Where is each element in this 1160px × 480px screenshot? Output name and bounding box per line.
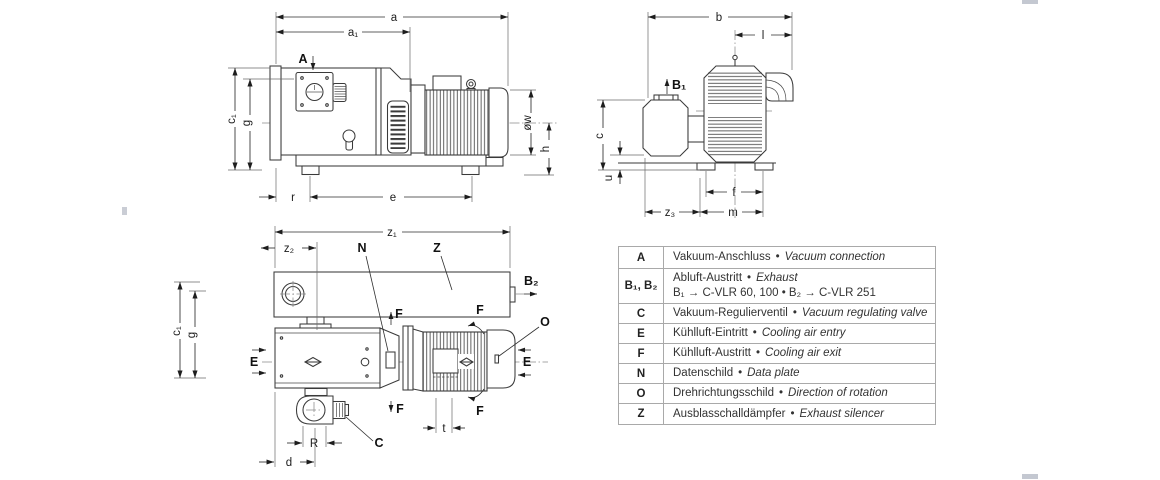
pump-dimension-drawing: a a₁ c₁ g øw h r e A (0, 0, 1160, 480)
legend-en: Vacuum regulating valve (802, 307, 928, 319)
sight-glass (343, 130, 355, 142)
terminal-box-top (433, 349, 458, 373)
dim-label-t: t (442, 423, 446, 435)
dim-label-e: e (390, 192, 396, 204)
silencer-connector (688, 116, 704, 142)
legend-de: Abluft-Austritt (673, 272, 742, 284)
dim-label-f: f (732, 187, 736, 199)
legend-en: Vacuum connection (785, 251, 886, 263)
dim-label-c1-top: c₁ (171, 326, 183, 336)
legend-desc: Kühlluft-Austritt•Cooling air exit (664, 346, 935, 361)
legend-en: Cooling air entry (762, 327, 846, 339)
legend-desc: Vakuum-Regulierventil•Vacuum regulating … (664, 306, 935, 321)
dim-label-z2: z₂ (284, 243, 294, 255)
top-view: z₁ z₂ c₁ g R d t N Z B₂ (171, 226, 550, 469)
legend-en: Direction of rotation (788, 387, 888, 399)
dim-label-g-top: g (186, 332, 198, 338)
legend-key: O (619, 384, 664, 403)
dim-label-a1: a₁ (348, 27, 358, 39)
legend-key: F (619, 344, 664, 363)
point-label-N: N (357, 241, 366, 255)
point-label-F3: F (476, 303, 484, 317)
legend-de: Vakuum-Regulierventil (673, 307, 788, 319)
legend-desc: Kühlluft-Eintritt•Cooling air entry (664, 326, 935, 341)
bullet-separator: • (738, 367, 742, 379)
point-label-F1: F (395, 307, 403, 321)
bullet-separator: • (793, 307, 797, 319)
dim-label-z1: z₁ (387, 227, 397, 239)
legend-row-F: F Kühlluft-Austritt•Cooling air exit (619, 343, 935, 363)
legend-desc: Datenschild•Data plate (664, 366, 935, 381)
point-label-C: C (374, 436, 383, 450)
motor-fins (425, 90, 489, 155)
point-label-B1: B₁ (672, 78, 686, 92)
dim-label-ow: øw (522, 115, 534, 131)
exhaust-elbow (766, 73, 793, 101)
bullet-separator: • (779, 387, 783, 399)
exhaust-port-b1 (654, 95, 678, 100)
legend-de: Vakuum-Anschluss (673, 251, 771, 263)
point-label-F4: F (476, 404, 484, 418)
legend-row-B: B₁, B₂ Abluft-Austritt•Exhaust B₁ → C-VL… (619, 268, 935, 303)
legend-row-E: E Kühlluft-Eintritt•Cooling air entry (619, 323, 935, 343)
dim-label-g-side: g (241, 120, 253, 126)
point-label-B2: B₂ (524, 274, 539, 288)
legend-row-N: N Datenschild•Data plate (619, 363, 935, 383)
legend-de: Kühlluft-Eintritt (673, 327, 748, 339)
data-plate (386, 352, 395, 368)
legend-key: A (619, 247, 664, 268)
foot-right (462, 166, 479, 175)
bullet-separator: • (756, 347, 760, 359)
legend-en: Exhaust (756, 272, 798, 284)
legend-desc: Ausblasschalldämpfer•Exhaust silencer (664, 407, 935, 422)
lifting-eye (733, 55, 737, 59)
dim-label-z3: z₃ (665, 207, 676, 219)
valve-leader (346, 417, 373, 441)
dim-label-l: l (762, 30, 765, 42)
dim-label-c1-side: c₁ (226, 114, 238, 124)
dim-label-r: r (291, 192, 295, 204)
point-label-E-right: E (523, 355, 531, 369)
legend-row-O: O Drehrichtungsschild•Direction of rotat… (619, 383, 935, 403)
legend-key: E (619, 324, 664, 343)
legend-desc: Abluft-Austritt•Exhaust B₁ → C-VLR 60, 1… (664, 271, 935, 301)
technical-drawing-page: a a₁ c₁ g øw h r e A (0, 0, 1160, 480)
legend-key: B₁, B₂ (619, 269, 664, 303)
dim-label-u: u (603, 175, 615, 181)
legend-en: Cooling air exit (765, 347, 841, 359)
exhaust-silencer (274, 272, 510, 317)
point-label-O: O (540, 315, 550, 329)
legend-table: A Vakuum-Anschluss•Vacuum connection B₁,… (618, 246, 936, 425)
legend-row-A: A Vakuum-Anschluss•Vacuum connection (619, 247, 935, 268)
silencer-end (643, 100, 688, 156)
side-view: a a₁ c₁ g øw h r e A (226, 12, 558, 204)
end-plate (270, 66, 281, 160)
eyebolt-icon (467, 80, 476, 89)
dim-label-d: d (286, 457, 292, 469)
legend-row-Z: Z Ausblasschalldämpfer•Exhaust silencer (619, 403, 935, 424)
motor-flange (411, 85, 425, 153)
bullet-separator: • (753, 327, 757, 339)
motor-support (486, 158, 503, 167)
foot-left (302, 166, 319, 175)
fan-cover-top (487, 330, 515, 388)
legend-en: Data plate (747, 367, 799, 379)
point-label-A: A (298, 52, 307, 66)
bullet-separator: • (791, 408, 795, 420)
point-label-E-left: E (250, 355, 258, 369)
point-label-Z: Z (433, 241, 441, 255)
legend-desc: Drehrichtungsschild•Direction of rotatio… (664, 386, 935, 401)
bullet-separator: • (747, 272, 751, 284)
point-label-F2: F (396, 402, 404, 416)
louver-slats (391, 105, 406, 149)
legend-de: Ausblasschalldämpfer (673, 408, 786, 420)
legend-de: Datenschild (673, 367, 733, 379)
legend-de: Drehrichtungsschild (673, 387, 774, 399)
dim-label-c: c (594, 133, 606, 139)
legend-en: Exhaust silencer (800, 408, 884, 420)
legend-desc: Vakuum-Anschluss•Vacuum connection (664, 250, 935, 265)
exhaust-port-b2 (510, 287, 515, 302)
motor-fins-upper (708, 71, 762, 104)
dim-label-m: m (728, 207, 738, 219)
valve-knob (333, 402, 345, 419)
legend-key: Z (619, 404, 664, 424)
end-view: b l c u f z₃ m B₁ (594, 12, 793, 219)
inlet-pipe (307, 317, 324, 324)
dim-label-b: b (716, 12, 722, 24)
terminal-box (433, 76, 461, 90)
dim-label-R: R (310, 438, 318, 450)
legend-key: C (619, 304, 664, 323)
dim-label-h: h (540, 146, 552, 152)
bullet-separator: • (776, 251, 780, 263)
motor-fins-lower (708, 117, 762, 157)
legend-de: Kühlluft-Austritt (673, 347, 751, 359)
dim-label-a: a (391, 12, 398, 24)
fan-cover (489, 88, 508, 157)
legend-row-C: C Vakuum-Regulierventil•Vacuum regulatin… (619, 303, 935, 323)
legend-key: N (619, 364, 664, 383)
legend-note: B₁ → C-VLR 60, 100 • B₂ → C-VLR 251 (673, 286, 935, 301)
rotation-plate (495, 355, 499, 363)
